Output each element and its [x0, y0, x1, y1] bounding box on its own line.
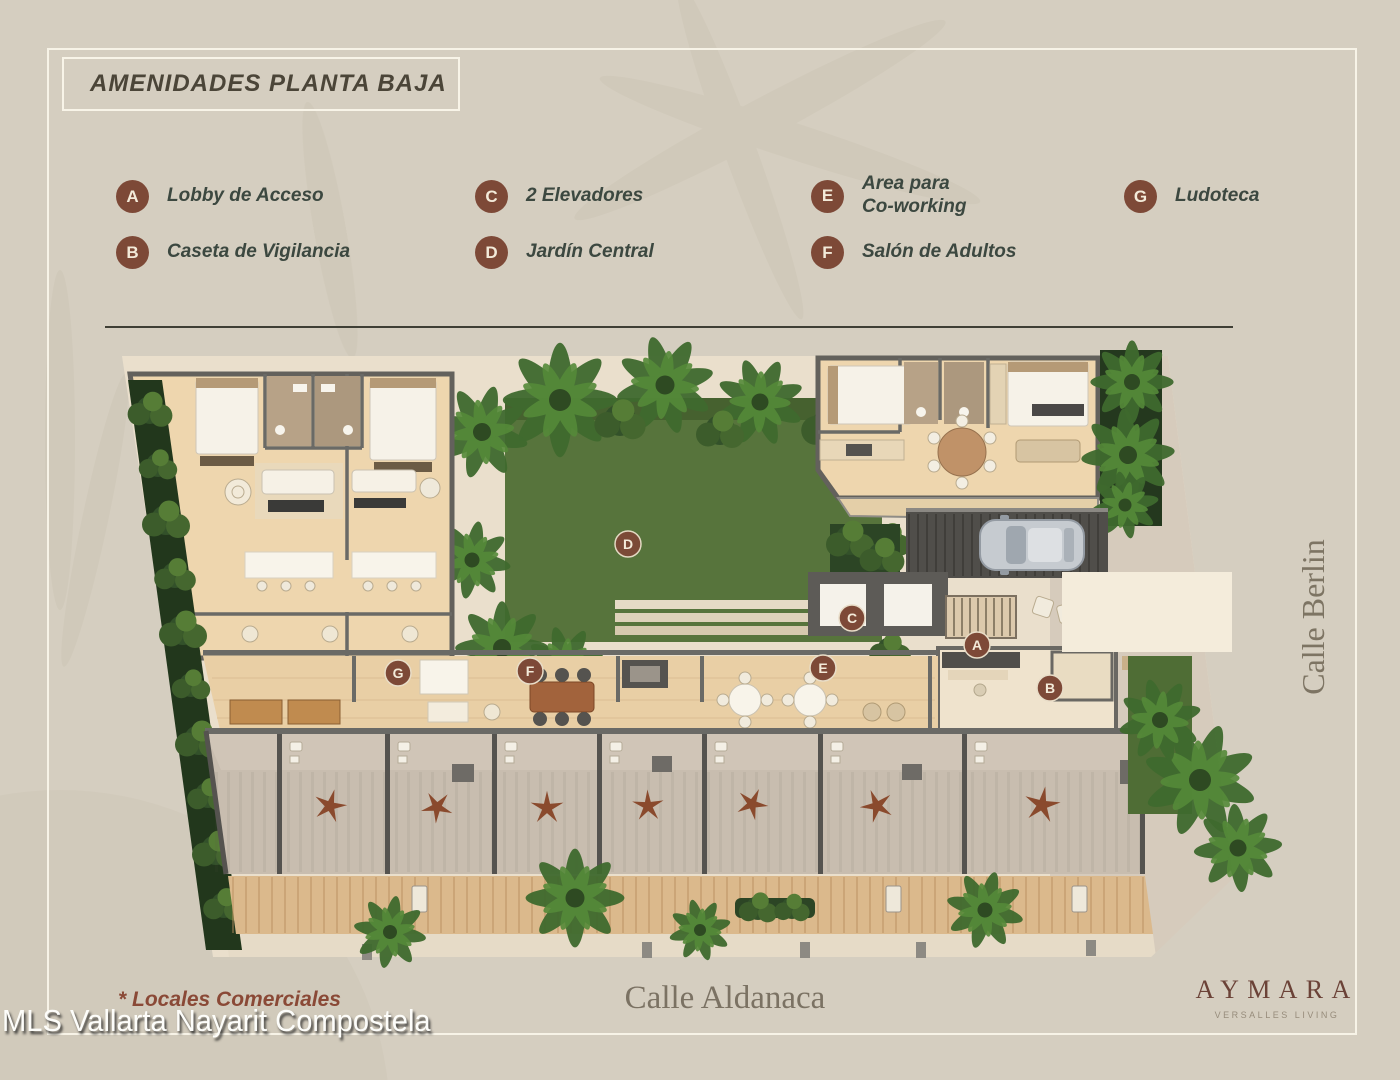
- floor-plan-illustration: D C A B E F G: [0, 0, 1400, 1080]
- svg-text:G: G: [393, 665, 404, 681]
- legend-divider-line: [105, 326, 1233, 328]
- legend-label-c: 2 Elevadores: [526, 185, 643, 208]
- legend-item-c: C 2 Elevadores: [475, 180, 643, 213]
- plan-marker-d: D: [615, 531, 641, 557]
- plan-marker-c: C: [839, 605, 865, 631]
- legend-item-g: G Ludoteca: [1124, 180, 1259, 213]
- legend-badge-e: E: [811, 180, 844, 213]
- legend-label-b: Caseta de Vigilancia: [167, 241, 350, 264]
- legend-label-a: Lobby de Acceso: [167, 185, 324, 208]
- apartment-block-right: [818, 358, 1098, 520]
- brochure-page: D C A B E F G: [0, 0, 1400, 1080]
- svg-text:C: C: [847, 610, 857, 626]
- legend-badge-g: G: [1124, 180, 1157, 213]
- car-illustration: [980, 515, 1084, 575]
- svg-text:E: E: [818, 660, 827, 676]
- legend-item-e: E Area para Co-working: [811, 168, 967, 224]
- legend-item-f: F Salón de Adultos: [811, 236, 1016, 269]
- brand-name: AYMARA: [1192, 975, 1362, 1005]
- street-label-berlin: Calle Berlin: [1293, 507, 1333, 727]
- legend-item-b: B Caseta de Vigilancia: [116, 236, 350, 269]
- plan-marker-a: A: [964, 632, 990, 658]
- legend-label-f: Salón de Adultos: [862, 241, 1016, 264]
- plan-marker-b: B: [1037, 675, 1063, 701]
- plan-marker-e: E: [810, 655, 836, 681]
- legend-label-g: Ludoteca: [1175, 185, 1259, 208]
- svg-text:F: F: [526, 663, 535, 679]
- plan-marker-g: G: [385, 660, 411, 686]
- svg-text:B: B: [1045, 680, 1055, 696]
- svg-text:A: A: [972, 637, 982, 653]
- legend-badge-a: A: [116, 180, 149, 213]
- brand-tagline: VERSALLES LIVING: [1192, 1010, 1362, 1020]
- title-box: AMENIDADES PLANTA BAJA: [62, 57, 460, 111]
- legend-badge-d: D: [475, 236, 508, 269]
- legend-badge-b: B: [116, 236, 149, 269]
- legend-badge-f: F: [811, 236, 844, 269]
- svg-text:D: D: [623, 536, 633, 552]
- legend-label-e: Area para Co-working: [862, 173, 967, 219]
- elevator-core: [808, 572, 948, 636]
- commercial-units: [206, 731, 1145, 874]
- legend-item-a: A Lobby de Acceso: [116, 180, 324, 213]
- legend-badge-c: C: [475, 180, 508, 213]
- page-title: AMENIDADES PLANTA BAJA: [64, 59, 458, 109]
- legend-item-d: D Jardín Central: [475, 236, 654, 269]
- legend-label-d: Jardín Central: [526, 241, 654, 264]
- brand-logo: AYMARA VERSALLES LIVING: [1192, 975, 1362, 1020]
- watermark-text: MLS Vallarta Nayarit Compostela: [2, 1003, 431, 1039]
- street-label-aldanaca: Calle Aldanaca: [575, 980, 875, 1017]
- plan-marker-f: F: [517, 658, 543, 684]
